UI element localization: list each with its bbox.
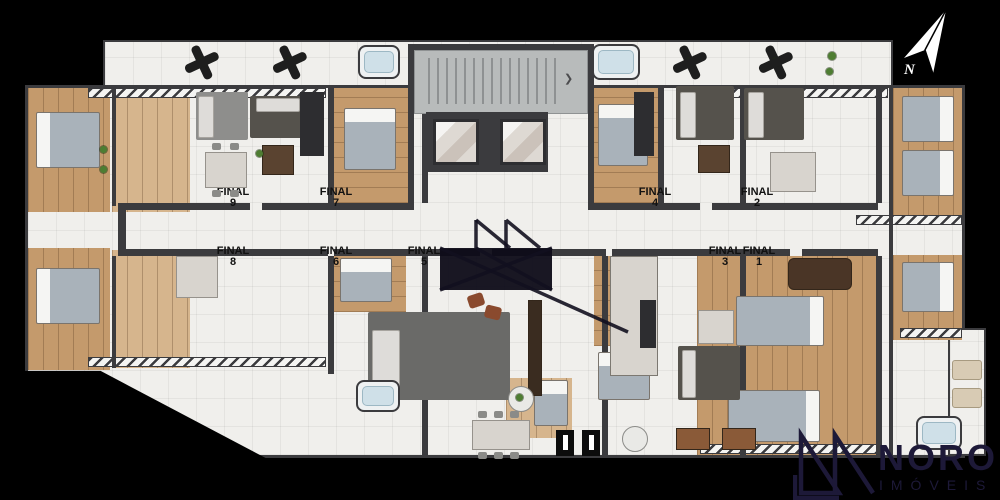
chair — [478, 452, 487, 459]
unit-divider-wall — [876, 88, 882, 203]
chair — [510, 411, 519, 418]
brand-subtitle: IMÓVEIS — [879, 477, 993, 493]
wing-divider-wall — [112, 88, 116, 206]
compass-letter: N — [903, 62, 916, 78]
elevator-cab — [500, 119, 546, 165]
chair — [230, 143, 239, 150]
dining-table — [698, 145, 730, 173]
plant-icon — [771, 57, 781, 67]
hot-tub — [356, 380, 400, 412]
unit-number: 4 — [633, 198, 677, 209]
unit-number: 1 — [737, 257, 781, 268]
corridor-end-wall — [118, 203, 126, 256]
chair — [494, 411, 503, 418]
unit-label-final-7: FINAL 7 — [314, 187, 358, 209]
suite-floor — [112, 88, 190, 212]
stair-treads — [428, 58, 560, 104]
unit-number: 2 — [735, 198, 779, 209]
bistro-table — [622, 426, 648, 452]
floor-plan-canvas: ❯ FINAL 9 FINAL 7 FINAL 4 FINAL 2 FINAL … — [0, 0, 1000, 500]
terrace-dining-table — [472, 420, 530, 450]
brand-watermark-icon — [432, 192, 632, 340]
elevator-cab — [433, 119, 479, 165]
kitchen-counter — [300, 92, 324, 156]
lounge-chair — [952, 388, 982, 408]
desk — [722, 428, 756, 450]
plant-icon — [828, 52, 836, 60]
plant-icon — [285, 57, 295, 67]
hot-tub-water — [362, 386, 394, 406]
compass-north-icon: N — [896, 6, 960, 82]
bed — [902, 150, 954, 196]
unit-divider-wall — [328, 256, 334, 374]
dining-table — [176, 256, 218, 298]
balcony-rail — [88, 357, 326, 367]
dining-table — [262, 145, 294, 175]
desk — [676, 428, 710, 450]
dining-table — [770, 152, 816, 192]
stair-direction-arrow: ❯ — [564, 72, 573, 85]
entrance-door-slot — [589, 435, 594, 450]
bed — [344, 108, 396, 170]
noro-logo-mark-icon — [793, 427, 879, 500]
wing-divider-wall — [112, 256, 116, 368]
bed — [902, 262, 954, 312]
entrance-door-slot — [563, 435, 568, 450]
unit-divider-wall — [876, 256, 882, 455]
bed — [736, 296, 824, 346]
unit-number: 7 — [314, 198, 358, 209]
dining-table — [698, 310, 734, 344]
plant-icon — [516, 394, 523, 401]
sofa — [680, 92, 696, 138]
balcony-rail — [856, 215, 962, 225]
sofa — [198, 96, 214, 138]
bed — [36, 268, 100, 324]
chair — [212, 190, 221, 197]
hot-tub — [358, 45, 400, 79]
chair — [510, 452, 519, 459]
chair — [212, 143, 221, 150]
plant-icon — [685, 57, 695, 67]
kitchen-counter — [634, 92, 654, 156]
hot-tub-water — [598, 50, 634, 74]
unit-label-final-1: FINAL 1 — [737, 246, 781, 268]
sofa — [682, 350, 696, 398]
kitchen-appliance — [640, 300, 656, 348]
wing-divider-wall — [889, 88, 893, 455]
sofa — [256, 98, 300, 112]
plant-icon — [826, 68, 833, 75]
brand-name: NORO — [878, 440, 998, 476]
plant-icon — [256, 150, 263, 157]
dining-table — [788, 258, 852, 290]
entrance-pillar — [556, 430, 574, 456]
balcony-rail — [900, 328, 962, 338]
hot-tub — [592, 44, 640, 80]
chair — [494, 452, 503, 459]
hot-tub-water — [364, 51, 394, 73]
chair — [478, 411, 487, 418]
plant-icon — [197, 57, 207, 67]
bed — [902, 96, 954, 142]
plant-icon — [100, 166, 107, 173]
plant-icon — [100, 146, 107, 153]
unit-label-final-4: FINAL 4 — [633, 187, 677, 209]
corridor-wall — [802, 249, 878, 256]
chair — [230, 190, 239, 197]
bed — [36, 112, 100, 168]
lounge-chair — [952, 360, 982, 380]
unit-number: 9 — [211, 198, 255, 209]
sofa — [748, 92, 764, 138]
entrance-pillar — [582, 430, 600, 456]
bed — [340, 258, 392, 302]
dining-table — [205, 152, 247, 188]
